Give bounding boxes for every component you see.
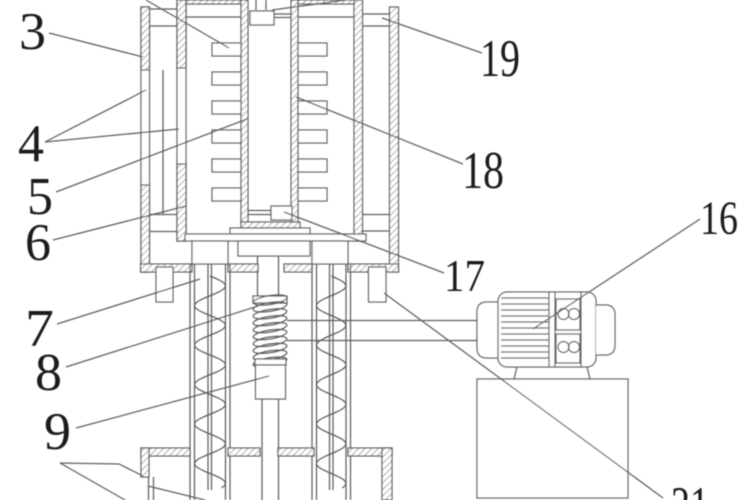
svg-text:9: 9 <box>44 403 71 461</box>
svg-text:21: 21 <box>671 477 709 500</box>
svg-text:16: 16 <box>700 192 738 245</box>
svg-text:4: 4 <box>18 115 44 173</box>
svg-text:3: 3 <box>19 3 46 61</box>
svg-text:8: 8 <box>35 344 62 402</box>
svg-text:17: 17 <box>444 251 485 301</box>
svg-text:6: 6 <box>25 214 51 272</box>
svg-text:18: 18 <box>462 142 504 200</box>
svg-text:19: 19 <box>480 30 520 88</box>
